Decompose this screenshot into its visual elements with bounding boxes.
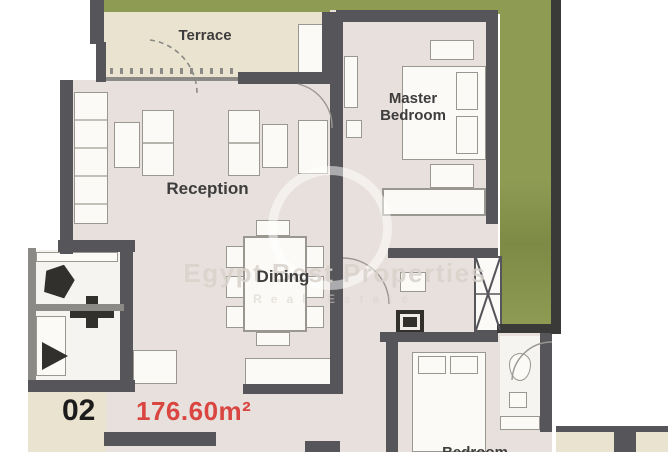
master-nightstand-top bbox=[430, 40, 474, 60]
dining-chair bbox=[226, 306, 244, 328]
unit-number: 02 bbox=[62, 394, 95, 428]
wall bbox=[96, 42, 106, 82]
watermark-title: Egypt Best Properties bbox=[155, 258, 515, 289]
wall bbox=[388, 248, 498, 258]
unit-area: 176.60m² bbox=[136, 396, 251, 427]
wall bbox=[28, 248, 36, 388]
reception-l-sofa bbox=[74, 92, 108, 224]
dining-sideboard bbox=[245, 358, 333, 386]
wall bbox=[238, 72, 336, 84]
wall bbox=[60, 80, 73, 254]
wall bbox=[243, 384, 338, 394]
room-label-master-bedroom: Master Bedroom bbox=[368, 90, 458, 125]
wall bbox=[556, 426, 668, 432]
bathroom-fixture-cross-v bbox=[86, 296, 98, 328]
wall bbox=[386, 332, 398, 452]
terrace-railing bbox=[106, 77, 242, 81]
room-label-reception: Reception bbox=[155, 179, 260, 199]
kitchen-counter bbox=[133, 350, 177, 384]
master-wardrobe bbox=[382, 188, 486, 216]
wall bbox=[486, 10, 498, 224]
tv-unit bbox=[396, 310, 424, 334]
room-label-terrace: Terrace bbox=[150, 27, 260, 44]
bedroom-pillow-left bbox=[418, 356, 446, 374]
watermark-subtitle: Real Estate bbox=[205, 292, 465, 306]
wall bbox=[58, 240, 135, 252]
shower-tray bbox=[500, 416, 540, 430]
outer-wall bbox=[551, 0, 561, 334]
reception-side-table-right bbox=[262, 124, 288, 168]
master-bed-pillow-bottom bbox=[456, 116, 478, 154]
dining-chair bbox=[306, 306, 324, 328]
wall bbox=[90, 0, 104, 44]
terrace-railing-ticks bbox=[110, 68, 240, 74]
wall bbox=[380, 332, 498, 342]
master-dresser bbox=[344, 56, 358, 108]
reception-side-table-left bbox=[114, 122, 140, 168]
dining-chair bbox=[256, 332, 290, 346]
bedroom-pillow-right bbox=[450, 356, 478, 374]
master-nightstand-bottom bbox=[430, 164, 474, 188]
bathroom-shelf bbox=[36, 252, 118, 262]
wall bbox=[34, 304, 124, 311]
wall bbox=[540, 330, 552, 432]
reception-sofa-left bbox=[142, 110, 174, 176]
wall bbox=[104, 432, 216, 446]
master-bed-pillow-top bbox=[456, 72, 478, 110]
reception-sofa-right bbox=[228, 110, 260, 176]
floor-plan: Egypt Best Properties Real Estate Terrac… bbox=[0, 0, 668, 452]
master-stool bbox=[346, 120, 362, 138]
wall bbox=[305, 441, 340, 452]
wall bbox=[120, 248, 133, 388]
room-label-bedroom: Bedroom bbox=[430, 444, 520, 452]
balcony-floor-bottom-right bbox=[556, 432, 668, 452]
wall bbox=[336, 10, 498, 22]
sink bbox=[509, 392, 527, 408]
wall bbox=[497, 324, 555, 333]
bathroom-counter bbox=[36, 316, 66, 376]
room-label-dining: Dining bbox=[248, 267, 318, 287]
wall bbox=[28, 380, 135, 392]
